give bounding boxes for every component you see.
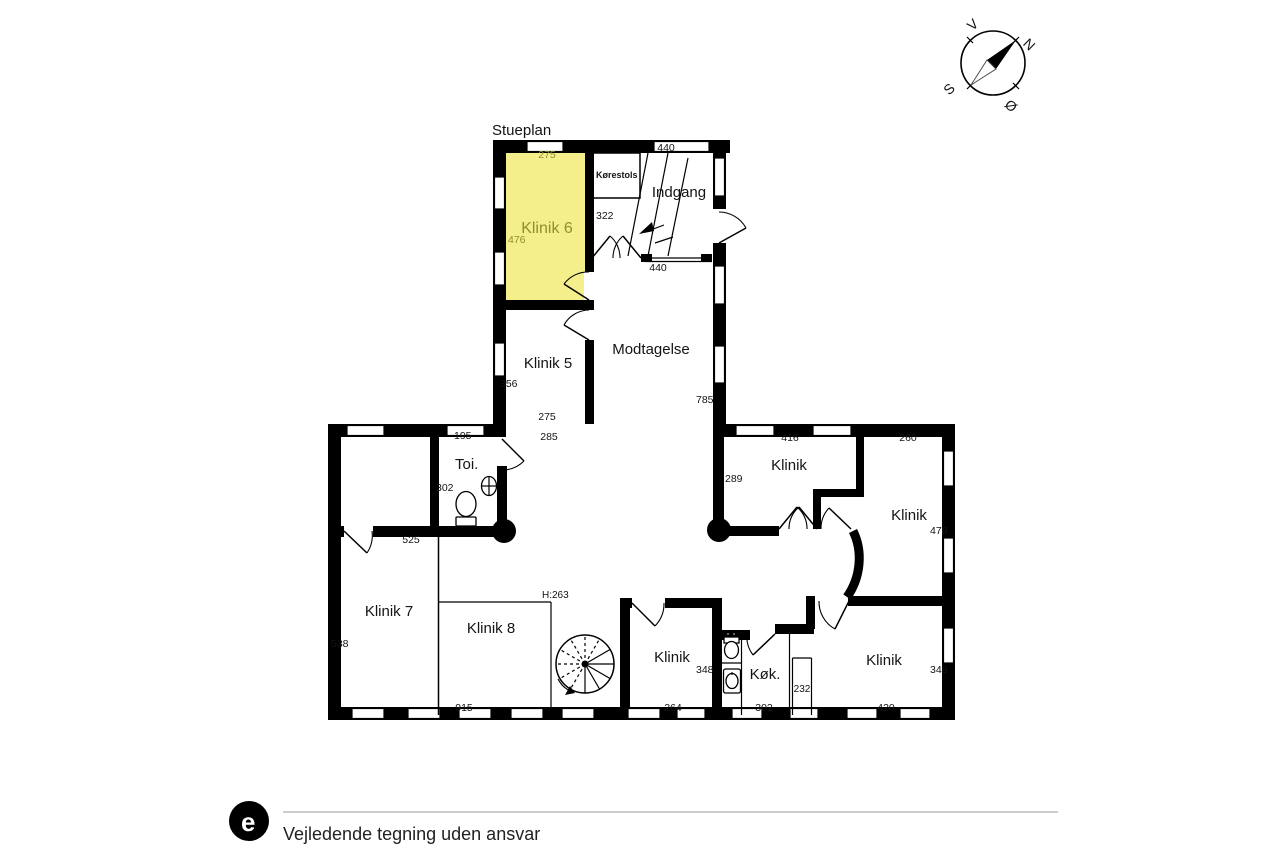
floor-plan-page: Stueplan 275 Klinik 6 476 Kørestols 440 … [0,0,1280,853]
page-title: Stueplan [492,122,551,139]
room-label-klinik7: Klinik 7 [365,603,413,620]
room-label-modtagelse: Modtagelse [612,341,690,358]
dim-klinik-s-width: 264 [664,702,682,714]
room-label-korestols: Kørestols [596,170,638,180]
dim-klinik-se-height: 349 [930,664,948,676]
compass-west-label: V [964,15,982,34]
dim-toi-height: 302 [436,482,454,494]
room-label-toi: Toi. [455,456,478,473]
footer: e Vejledende tegning uden ansvar [229,801,1058,844]
dim-klinik6-width: 275 [538,149,556,161]
room-label-indgang: Indgang [652,184,706,201]
room-label-klinik-s: Klinik [654,649,690,666]
dim-indgang-bottom: 440 [649,262,667,274]
dim-klinik5-height: 356 [500,378,518,390]
room-label-kok: Køk. [750,666,781,683]
floor-plan-drawing: Stueplan 275 Klinik 6 476 Kørestols 440 … [0,0,1280,853]
column [707,518,731,542]
dim-klinik5-outer: 285 [540,431,558,443]
railing [641,254,712,262]
compass-south-label: S [940,80,958,98]
room-label-klinik-se: Klinik [866,652,902,669]
wc-sink-icon [724,669,741,693]
entrance-ramp [628,153,688,256]
sink-icon [482,477,497,496]
room-label-klinik5: Klinik 5 [524,355,572,372]
room-label-klinik8: Klinik 8 [467,620,515,637]
disclaimer-text: Vejledende tegning uden ansvar [283,824,540,844]
dim-klinik7-height: 538 [331,638,349,650]
dim-klinik6-height: 476 [508,234,526,246]
column [492,519,516,543]
spiral-staircase-icon [556,635,614,695]
exterior-walls [328,140,955,720]
compass-east-label: Ø [1002,96,1021,115]
dim-klinik-ne-height: 289 [725,473,743,485]
dim-toi-width: 195 [454,430,472,442]
dim-klinik8-ceiling: H:263 [542,590,569,601]
dim-indgang-top: 440 [657,142,675,154]
dim-kok-hall: 232 [794,684,811,695]
dim-klinik-e-width: 260 [899,432,917,444]
dim-klinik-ne-width: 416 [781,432,799,444]
dim-klinik5-inner: 275 [538,411,556,423]
dim-klinik8-width: 915 [455,702,473,714]
room-label-klinik-ne: Klinik [771,457,807,474]
room-label-klinik6: Klinik 6 [521,220,573,237]
curved-wall [847,531,859,597]
dim-klinik-s-height: 348 [696,664,714,676]
logo-letter: e [241,807,255,837]
dim-klinik-e-height: 478 [930,525,948,537]
dim-modtagelse-height: 785 [696,394,714,406]
dim-indgang-wall: 322 [596,210,614,222]
compass-rose-icon: V N S Ø [940,15,1038,115]
dim-kok-width: 302 [755,702,773,714]
dim-klinik-se-width: 420 [877,702,895,714]
toilet-icon [456,492,476,527]
room-label-klinik-e: Klinik [891,507,927,524]
ramp-arrow-icon [639,222,654,234]
dim-klinik7-width: 525 [402,534,420,546]
wc-toilet-icon [724,633,739,659]
